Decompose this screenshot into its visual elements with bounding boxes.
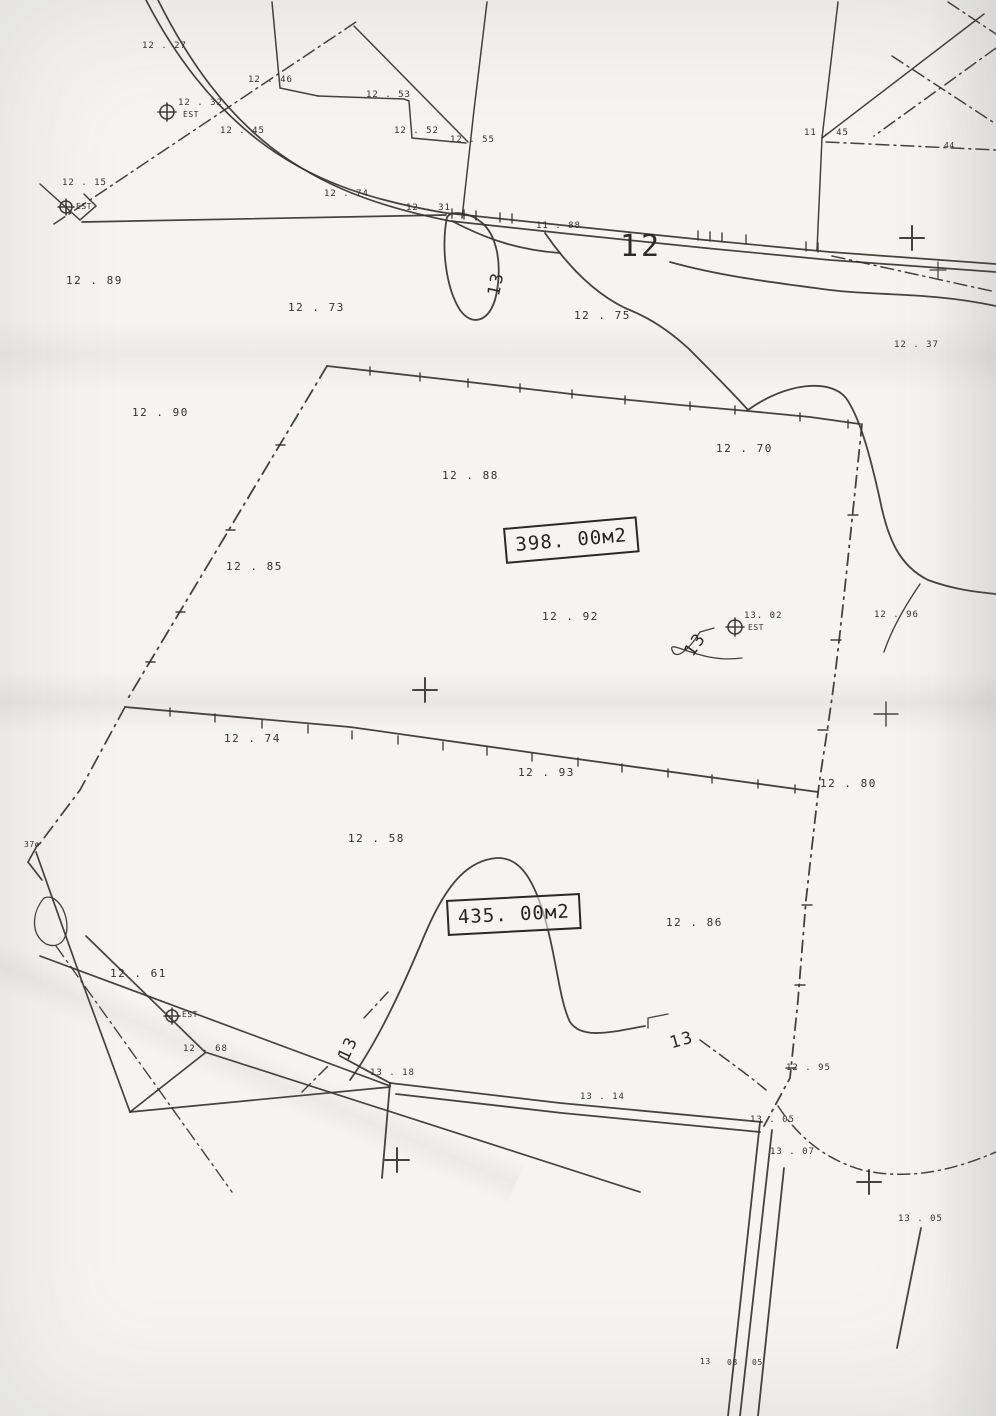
spot-elevation-label: 12 . 31 — [406, 204, 451, 213]
road-lines — [82, 0, 996, 272]
survey-map-page: 12 . 27 12 . 46 12 . 32 EST 12 . 45 12 .… — [0, 0, 996, 1416]
spot-elevation-label: 12 . 52 — [394, 127, 439, 136]
survey-marker-label: 13. 02 — [744, 612, 783, 621]
spot-elevation-label: 12 . 46 — [248, 76, 293, 85]
survey-marker-sublabel: EST — [182, 1011, 198, 1019]
spot-elevation-label: 13 . 05 — [898, 1215, 943, 1224]
spot-elevation-label: 13 . 14 — [580, 1093, 625, 1102]
spot-elevation-label: 12 . 45 — [220, 127, 265, 136]
spot-elevation-label: 12 . 93 — [518, 767, 575, 778]
spot-elevation-label: 12 . 58 — [348, 833, 405, 844]
spot-elevation-label: 13 — [700, 1358, 711, 1366]
survey-marker-sublabel: EST — [76, 203, 92, 211]
parcel-area-box-435: 435. 00м2 — [446, 893, 582, 936]
spot-elevation-label: 12 . 75 — [574, 310, 631, 321]
spot-elevation-label: 12 . 15 — [62, 179, 107, 188]
spot-elevation-label: 12 . 92 — [542, 611, 599, 622]
spot-elevation-label: 11 . 45 — [804, 129, 849, 138]
plus-mark — [385, 226, 924, 1194]
survey-marker-label: 12 . 32 — [178, 99, 223, 108]
spot-elevation-label: 12 . 73 — [288, 302, 345, 313]
stream-lines — [302, 213, 996, 1174]
spot-elevation-label: 12 . 96 — [874, 611, 919, 620]
spot-elevation-label: 12 . 37 — [894, 341, 939, 350]
spot-elevation-label: 12 . 86 — [666, 917, 723, 928]
spot-elevation-label: 12 . 95 — [786, 1064, 831, 1073]
spot-elevation-label: 13 . 07 — [770, 1148, 815, 1157]
spot-elevation-label: 12 . 89 — [66, 275, 123, 286]
spot-elevation-label: 12 . 27 — [142, 42, 187, 51]
spot-elevation-label: 12 . 61 — [110, 968, 167, 979]
boundary-lines-top-left — [40, 2, 487, 224]
contour-label: 12 — [620, 232, 662, 262]
spot-elevation-label: 12 . 74 — [324, 190, 369, 199]
spot-elevation-label: 08 — [727, 1359, 738, 1367]
spot-elevation-label: 12 . 80 — [820, 778, 877, 789]
spot-elevation-label: 44 — [944, 142, 955, 150]
south-road-lines — [340, 1056, 921, 1416]
survey-marker-sublabel: EST — [183, 111, 199, 119]
spot-elevation-label: 11 . 88 — [536, 222, 581, 231]
middle-boundary — [125, 707, 818, 793]
spot-elevation-label: 12 . 85 — [226, 561, 283, 572]
spot-elevation-label: 12 . 55 — [450, 136, 495, 145]
parcel2-boundary — [28, 707, 640, 1192]
survey-marker-sublabel: EST — [748, 624, 764, 632]
boundary-lines-top-right — [817, 2, 996, 292]
spot-elevation-label: 13 . 18 — [370, 1069, 415, 1078]
spot-elevation-label: 12 . 68 — [183, 1045, 228, 1054]
spot-elevation-label: 05 — [752, 1359, 763, 1367]
spot-elevation-label: 13 . 05 — [750, 1116, 795, 1125]
spot-elevation-label: 12 . 88 — [442, 470, 499, 481]
contour-label: 13 — [486, 270, 508, 297]
spot-elevation-label: 37o — [24, 841, 40, 849]
map-linework — [0, 0, 996, 1416]
spot-elevation-label: 12 . 90 — [132, 407, 189, 418]
spot-elevation-label: 12 . 74 — [224, 733, 281, 744]
spot-elevation-label: 12 . 70 — [716, 443, 773, 454]
spot-elevation-label: 12 . 53 — [366, 91, 411, 100]
